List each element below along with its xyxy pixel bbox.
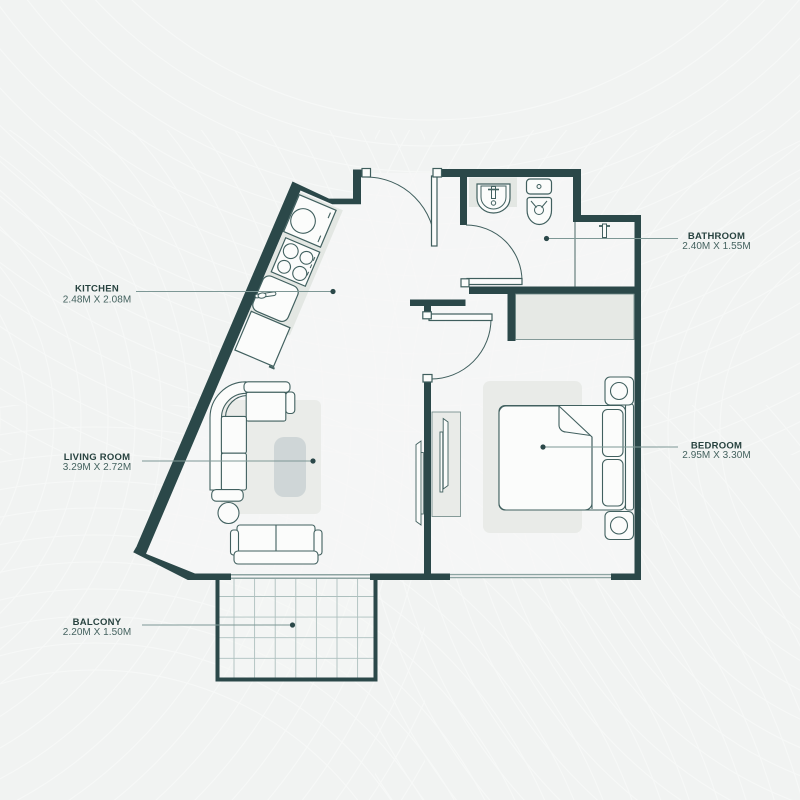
svg-text:2.20M X 1.50M: 2.20M X 1.50M (63, 627, 131, 638)
svg-text:2.95M X 3.30M: 2.95M X 3.30M (682, 450, 750, 461)
svg-text:2.48M X 2.08M: 2.48M X 2.08M (63, 295, 131, 306)
svg-text:KITCHEN: KITCHEN (75, 284, 119, 295)
svg-text:3.29M X 2.72M: 3.29M X 2.72M (63, 462, 131, 473)
svg-text:2.40M X 1.55M: 2.40M X 1.55M (682, 241, 750, 252)
